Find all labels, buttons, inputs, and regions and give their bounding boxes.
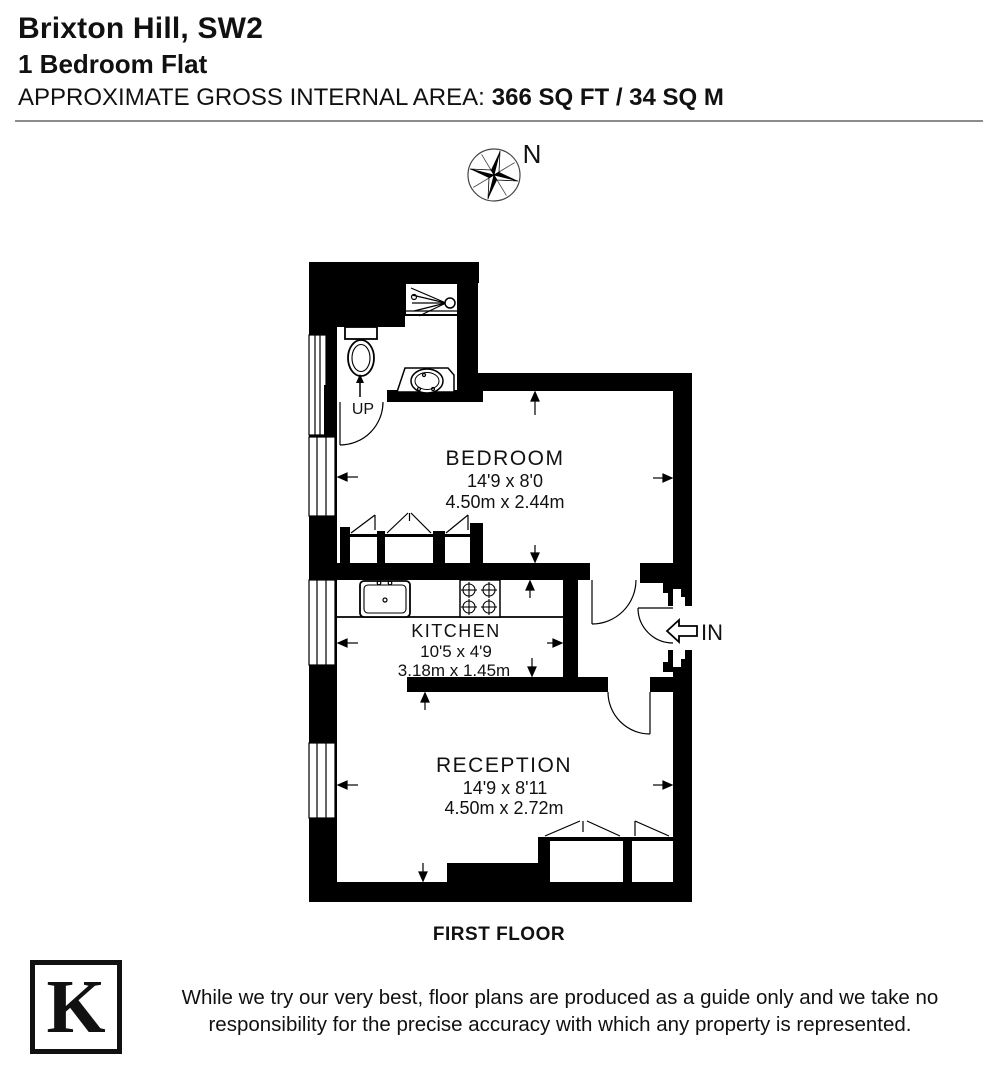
floorplan-page: Brixton Hill, SW2 1 Bedroom Flat APPROXI… (0, 0, 998, 1080)
hall-top-door (592, 580, 636, 624)
wall-bathroom-right (457, 262, 478, 392)
kitchen-window (309, 580, 335, 665)
hall-doors (592, 580, 673, 734)
bedroom-name: BEDROOM (445, 447, 564, 470)
bedroom-closet-doors (351, 513, 468, 533)
reception-imperial: 14'9 x 8'11 (463, 778, 548, 798)
kitchen-imperial: 10'5 x 4'9 (420, 642, 492, 661)
hall-bottom-door (608, 692, 650, 734)
hob (460, 580, 500, 617)
reception-closet-doors (545, 821, 669, 836)
wall-reception-bottom (309, 882, 692, 902)
bathroom-sink (397, 368, 454, 393)
entrance-step (663, 662, 673, 672)
entrance-step (668, 650, 673, 663)
reception-window (309, 743, 335, 818)
disclaimer-line1: While we try our very best, floor plans … (140, 984, 980, 1011)
floor-label: FIRST FLOOR (0, 924, 998, 946)
shower-head (445, 298, 455, 308)
bedroom-metric: 4.50m x 2.44m (445, 492, 564, 512)
wall-bedroom-top (460, 373, 692, 391)
shower (405, 283, 458, 316)
agency-logo: K (30, 960, 122, 1054)
closet-front-line-reception (538, 837, 673, 841)
entrance-label: IN (701, 620, 723, 645)
entrance-door (638, 608, 673, 643)
toilet (345, 327, 377, 376)
bedroom-imperial: 14'9 x 8'0 (467, 471, 543, 491)
kitchen-metric: 3.18m x 1.45m (398, 661, 510, 680)
kitchen-name: KITCHEN (411, 621, 501, 641)
disclaimer: While we try our very best, floor plans … (140, 984, 980, 1038)
wall-hall-bottom (650, 677, 673, 692)
reception-metric: 4.50m x 2.72m (444, 798, 563, 818)
floorplan-drawing: N (0, 0, 998, 1080)
agency-logo-letter: K (46, 969, 105, 1045)
entrance-step (668, 593, 673, 606)
disclaimer-line2: responsibility for the precise accuracy … (140, 1011, 980, 1038)
kitchen-sink (360, 581, 410, 617)
stairs-label: UP (352, 401, 374, 418)
wall-hall-top-corner (640, 563, 673, 583)
closet-front-line-bedroom (340, 534, 483, 537)
north-label: N (523, 139, 542, 169)
compass-star (470, 151, 518, 199)
entrance-step (663, 583, 673, 593)
wall-kitchen-hall-divider (563, 580, 578, 692)
wall-chimney-step (447, 863, 543, 882)
compass-rose: N (468, 139, 541, 201)
reception-name: RECEPTION (436, 754, 572, 777)
wall-bedroom-kitchen-divider (309, 563, 590, 580)
bedroom-window (309, 437, 335, 516)
